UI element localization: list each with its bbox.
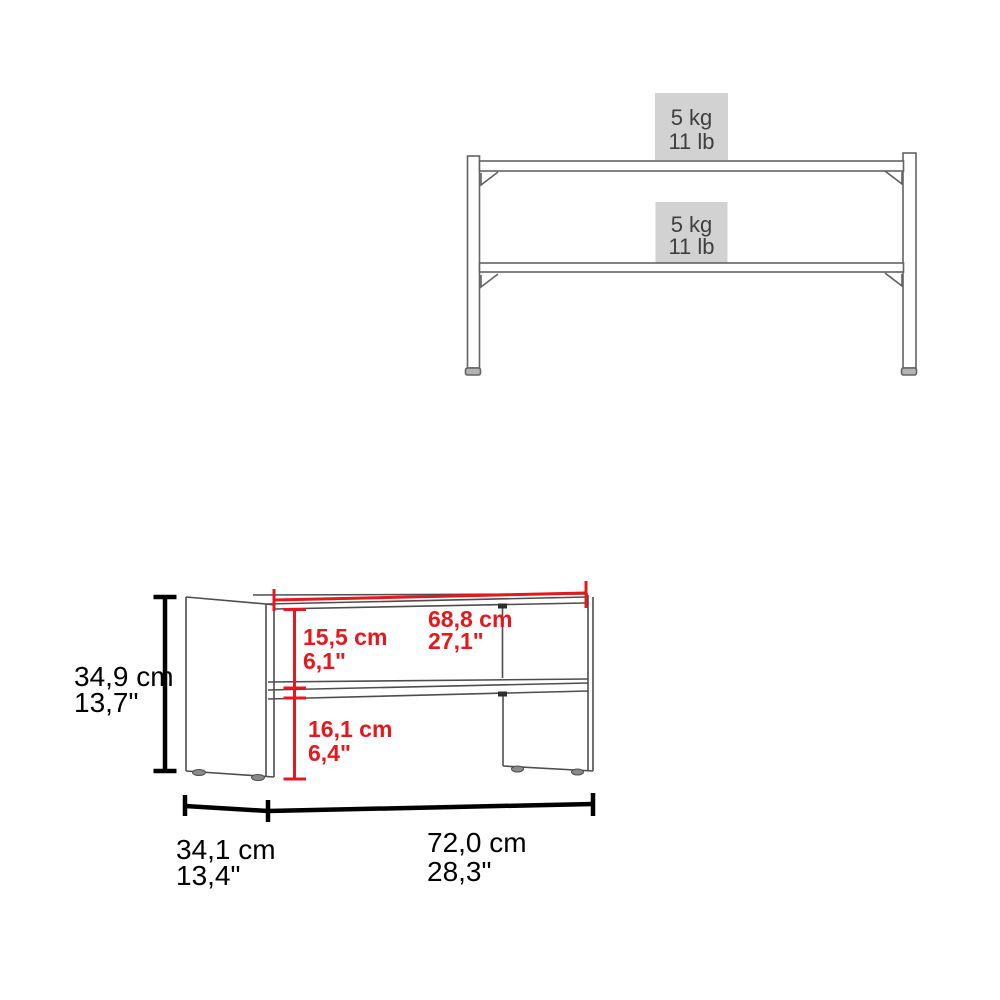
load-top-imperial: 11 lb — [668, 129, 714, 154]
middle-shelf — [268, 679, 588, 699]
lower-right-panel — [503, 695, 593, 771]
dim-line-depth-and-width — [185, 793, 593, 822]
frame-front-view — [466, 153, 917, 375]
frame-left-foot — [466, 368, 481, 375]
load-badge-top-shelf: 5 kg 11 lb — [655, 93, 728, 160]
bracket-top-left — [481, 172, 498, 185]
dimension-diagram-page: 5 kg 11 lb 5 kg 11 lb — [0, 0, 1000, 1000]
lower-opening-metric: 16,1 cm — [308, 716, 392, 742]
overall-width-metric: 72,0 cm — [427, 827, 527, 858]
frame-right-leg — [903, 153, 916, 368]
connector-mark-lower — [498, 692, 507, 697]
load-badge-bottom-shelf: 5 kg 11 lb — [656, 202, 728, 264]
overall-width-imperial: 28,3" — [427, 856, 491, 887]
right-side-panel — [588, 595, 593, 771]
frame-left-leg — [468, 156, 480, 368]
frame-top-shelf-bar — [480, 161, 904, 171]
left-side-panel — [186, 597, 274, 777]
overall-depth-imperial: 13,4" — [176, 860, 240, 891]
upper-opening-imperial: 6,1" — [303, 648, 346, 674]
inner-width-imperial: 27,1" — [428, 628, 484, 654]
load-top-metric: 5 kg — [671, 105, 713, 130]
upper-opening-metric: 15,5 cm — [303, 624, 387, 650]
diagram-svg: 5 kg 11 lb 5 kg 11 lb — [0, 0, 1000, 1000]
frame-right-foot — [902, 368, 917, 375]
table-feet — [193, 766, 584, 781]
dimensions-view: 34,9 cm 13,7" 68,8 cm 27,1" 15,5 cm 6,1"… — [74, 581, 593, 891]
table-perspective-drawing — [186, 594, 593, 781]
bracket-bottom-right — [885, 273, 902, 286]
bracket-top-right — [885, 171, 902, 184]
load-capacity-view: 5 kg 11 lb 5 kg 11 lb — [466, 93, 917, 375]
overall-height-imperial: 13,7" — [74, 687, 138, 718]
load-bottom-imperial: 11 lb — [668, 234, 714, 259]
dimension-labels: 34,9 cm 13,7" 68,8 cm 27,1" 15,5 cm 6,1"… — [74, 606, 527, 891]
frame-lower-shelf-bar — [480, 263, 904, 272]
lower-opening-imperial: 6,4" — [308, 740, 351, 766]
bracket-bottom-left — [481, 274, 498, 287]
